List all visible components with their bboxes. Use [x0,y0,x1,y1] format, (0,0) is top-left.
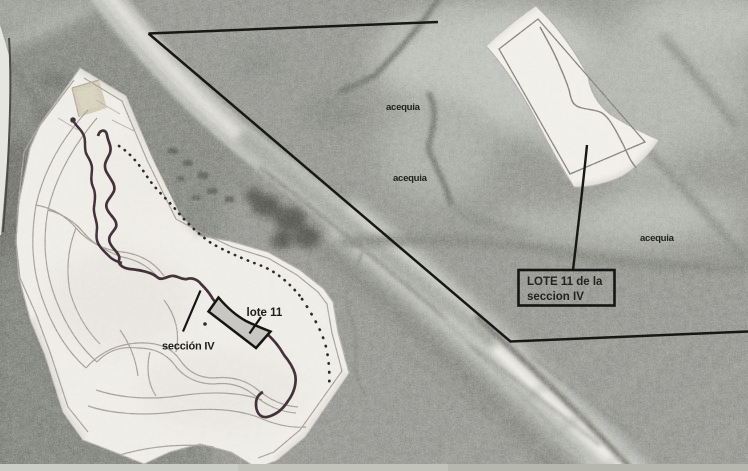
svg-text:acequia: acequia [386,102,421,113]
svg-text:lote 11: lote 11 [247,307,283,319]
svg-text:sección IV: sección IV [162,341,215,353]
svg-text:seccion IV: seccion IV [527,291,584,303]
svg-text:LOTE 11 de la: LOTE 11 de la [527,276,603,288]
svg-text:acequia: acequia [393,173,428,184]
svg-text:acequia: acequia [640,233,675,244]
